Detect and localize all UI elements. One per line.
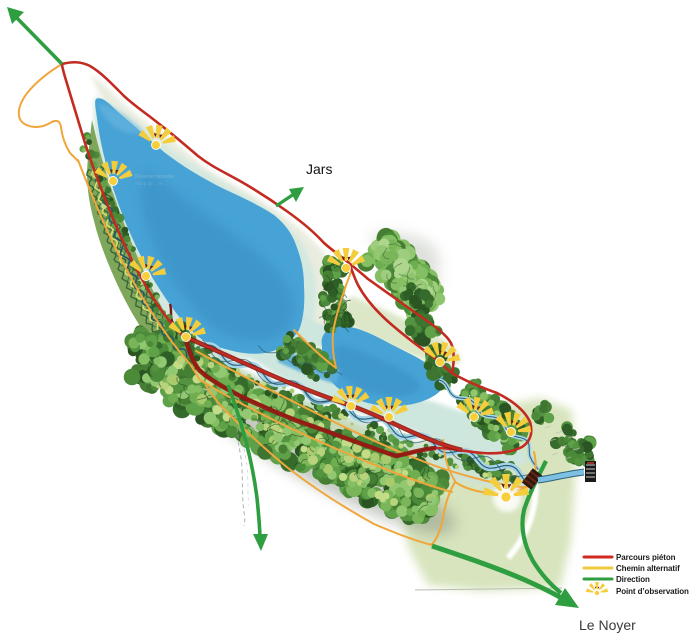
svg-text:Parcours piéton: Parcours piéton bbox=[616, 553, 676, 562]
svg-text:Chemin alternatif: Chemin alternatif bbox=[616, 564, 680, 573]
svg-text:Direction: Direction bbox=[616, 575, 650, 584]
svg-text:étang de ... m: étang de ... m bbox=[135, 181, 163, 186]
svg-text:Point d’observation: Point d’observation bbox=[616, 587, 689, 596]
svg-text:Réserve naturelle: Réserve naturelle bbox=[135, 174, 174, 180]
svg-text:Jars: Jars bbox=[306, 161, 332, 177]
svg-text:Le Noyer: Le Noyer bbox=[579, 617, 636, 633]
